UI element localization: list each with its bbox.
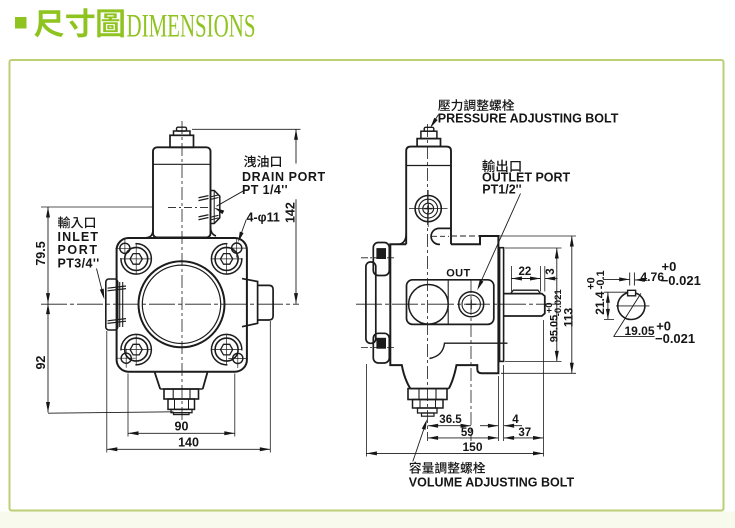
svg-text:4-φ11: 4-φ11 xyxy=(247,211,280,225)
svg-text:142: 142 xyxy=(284,202,298,223)
svg-text:−0.021: −0.021 xyxy=(661,273,701,288)
svg-text:140: 140 xyxy=(178,436,199,450)
svg-text:PORT: PORT xyxy=(58,243,99,257)
svg-text:PT3/4'': PT3/4'' xyxy=(58,256,100,270)
svg-text:+0: +0 xyxy=(662,259,677,274)
svg-text:36.5: 36.5 xyxy=(439,414,462,426)
svg-text:150: 150 xyxy=(462,440,482,454)
svg-text:19.05: 19.05 xyxy=(625,324,655,338)
svg-text:37: 37 xyxy=(518,427,531,439)
svg-text:92: 92 xyxy=(34,356,48,370)
svg-text:VOLUME ADJUSTING BOLT: VOLUME ADJUSTING BOLT xyxy=(409,476,575,490)
svg-text:59: 59 xyxy=(461,427,474,439)
svg-text:PRESSURE ADJUSTING BOLT: PRESSURE ADJUSTING BOLT xyxy=(438,112,619,126)
svg-text:PT1/2'': PT1/2'' xyxy=(482,182,521,196)
svg-text:DIMENSIONS: DIMENSIONS xyxy=(127,8,256,44)
svg-text:90: 90 xyxy=(175,420,189,434)
svg-text:4: 4 xyxy=(512,414,519,426)
svg-text:PT 1/4'': PT 1/4'' xyxy=(242,183,288,197)
svg-text:3: 3 xyxy=(545,268,557,274)
svg-text:21.4: 21.4 xyxy=(593,291,607,315)
svg-text:OUT: OUT xyxy=(446,268,470,280)
svg-text:113: 113 xyxy=(561,307,575,327)
svg-text:79.5: 79.5 xyxy=(34,241,48,265)
svg-text:22: 22 xyxy=(519,266,532,278)
svg-text:−0.021: −0.021 xyxy=(655,331,695,346)
svg-text:95.05: 95.05 xyxy=(548,315,560,343)
svg-text:INLET: INLET xyxy=(58,230,100,244)
